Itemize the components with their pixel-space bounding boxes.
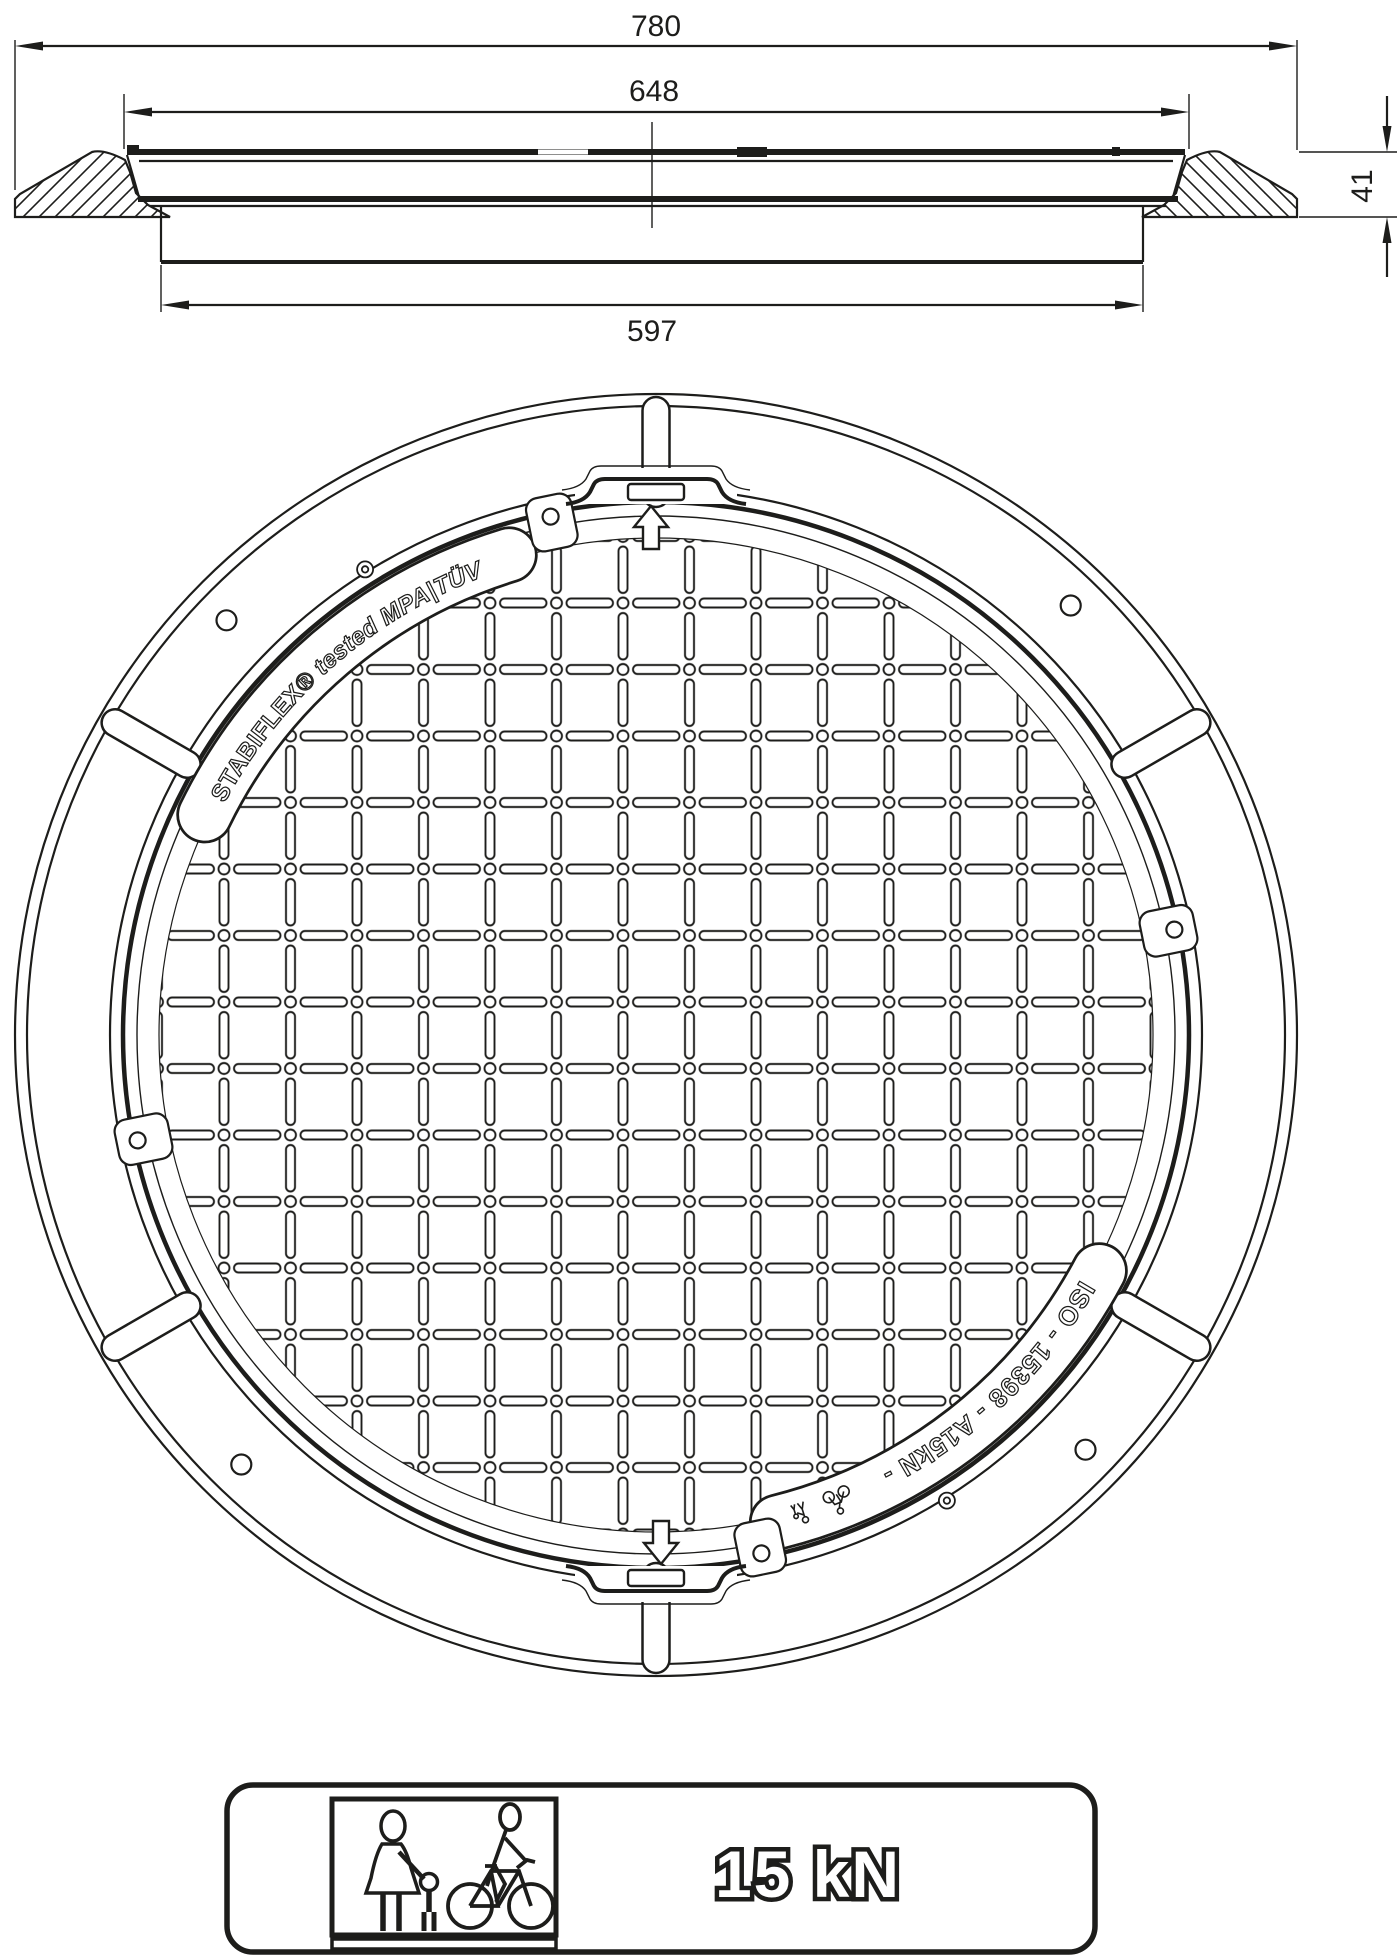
cover-detail-left <box>127 145 139 153</box>
vent-pin <box>97 704 206 782</box>
dimension-41: 41 <box>1299 96 1397 277</box>
vent-pin <box>1107 704 1216 782</box>
ground-bar <box>332 1939 556 1949</box>
locking-tab <box>524 491 580 553</box>
pictogram-box <box>332 1799 556 1935</box>
drawing-canvas: 780 648 <box>0 0 1400 1960</box>
plan-view: STABIFLEX® tested MPA|TÜV ISO - 15398 - … <box>15 394 1297 1676</box>
frame-hole <box>217 610 237 630</box>
cover-detail-right <box>1112 147 1120 156</box>
load-value: 15 kN <box>715 1837 901 1911</box>
frame-hole <box>1061 596 1081 616</box>
dim-arrow-left <box>15 42 43 51</box>
lift-slot <box>628 484 684 500</box>
dimension-648: 648 <box>124 75 1189 149</box>
rivet-mark <box>362 566 368 572</box>
frame-hole <box>231 1455 251 1475</box>
vent-pin <box>1107 1287 1216 1365</box>
cover-slot-gap <box>538 150 588 155</box>
dim-780-label: 780 <box>631 10 681 43</box>
dim-597-label: 597 <box>627 315 677 348</box>
dim-648-label: 648 <box>629 75 679 108</box>
rivet-mark <box>944 1497 950 1503</box>
technical-drawing-page: 780 648 <box>0 0 1400 1960</box>
load-class-label: 15 kN <box>227 1785 1095 1952</box>
cover-pick-slot <box>737 147 767 157</box>
dimension-597: 597 <box>161 265 1143 348</box>
frame-hole <box>1076 1440 1096 1460</box>
section-view: 780 648 <box>15 10 1397 348</box>
cover-section <box>127 145 1185 206</box>
locking-tab <box>1137 903 1199 959</box>
dim-arrow-right <box>1269 42 1297 51</box>
dim-41-label: 41 <box>1346 169 1379 202</box>
locking-tab <box>732 1516 788 1578</box>
locking-tab <box>112 1111 174 1167</box>
vent-pin <box>97 1287 206 1365</box>
